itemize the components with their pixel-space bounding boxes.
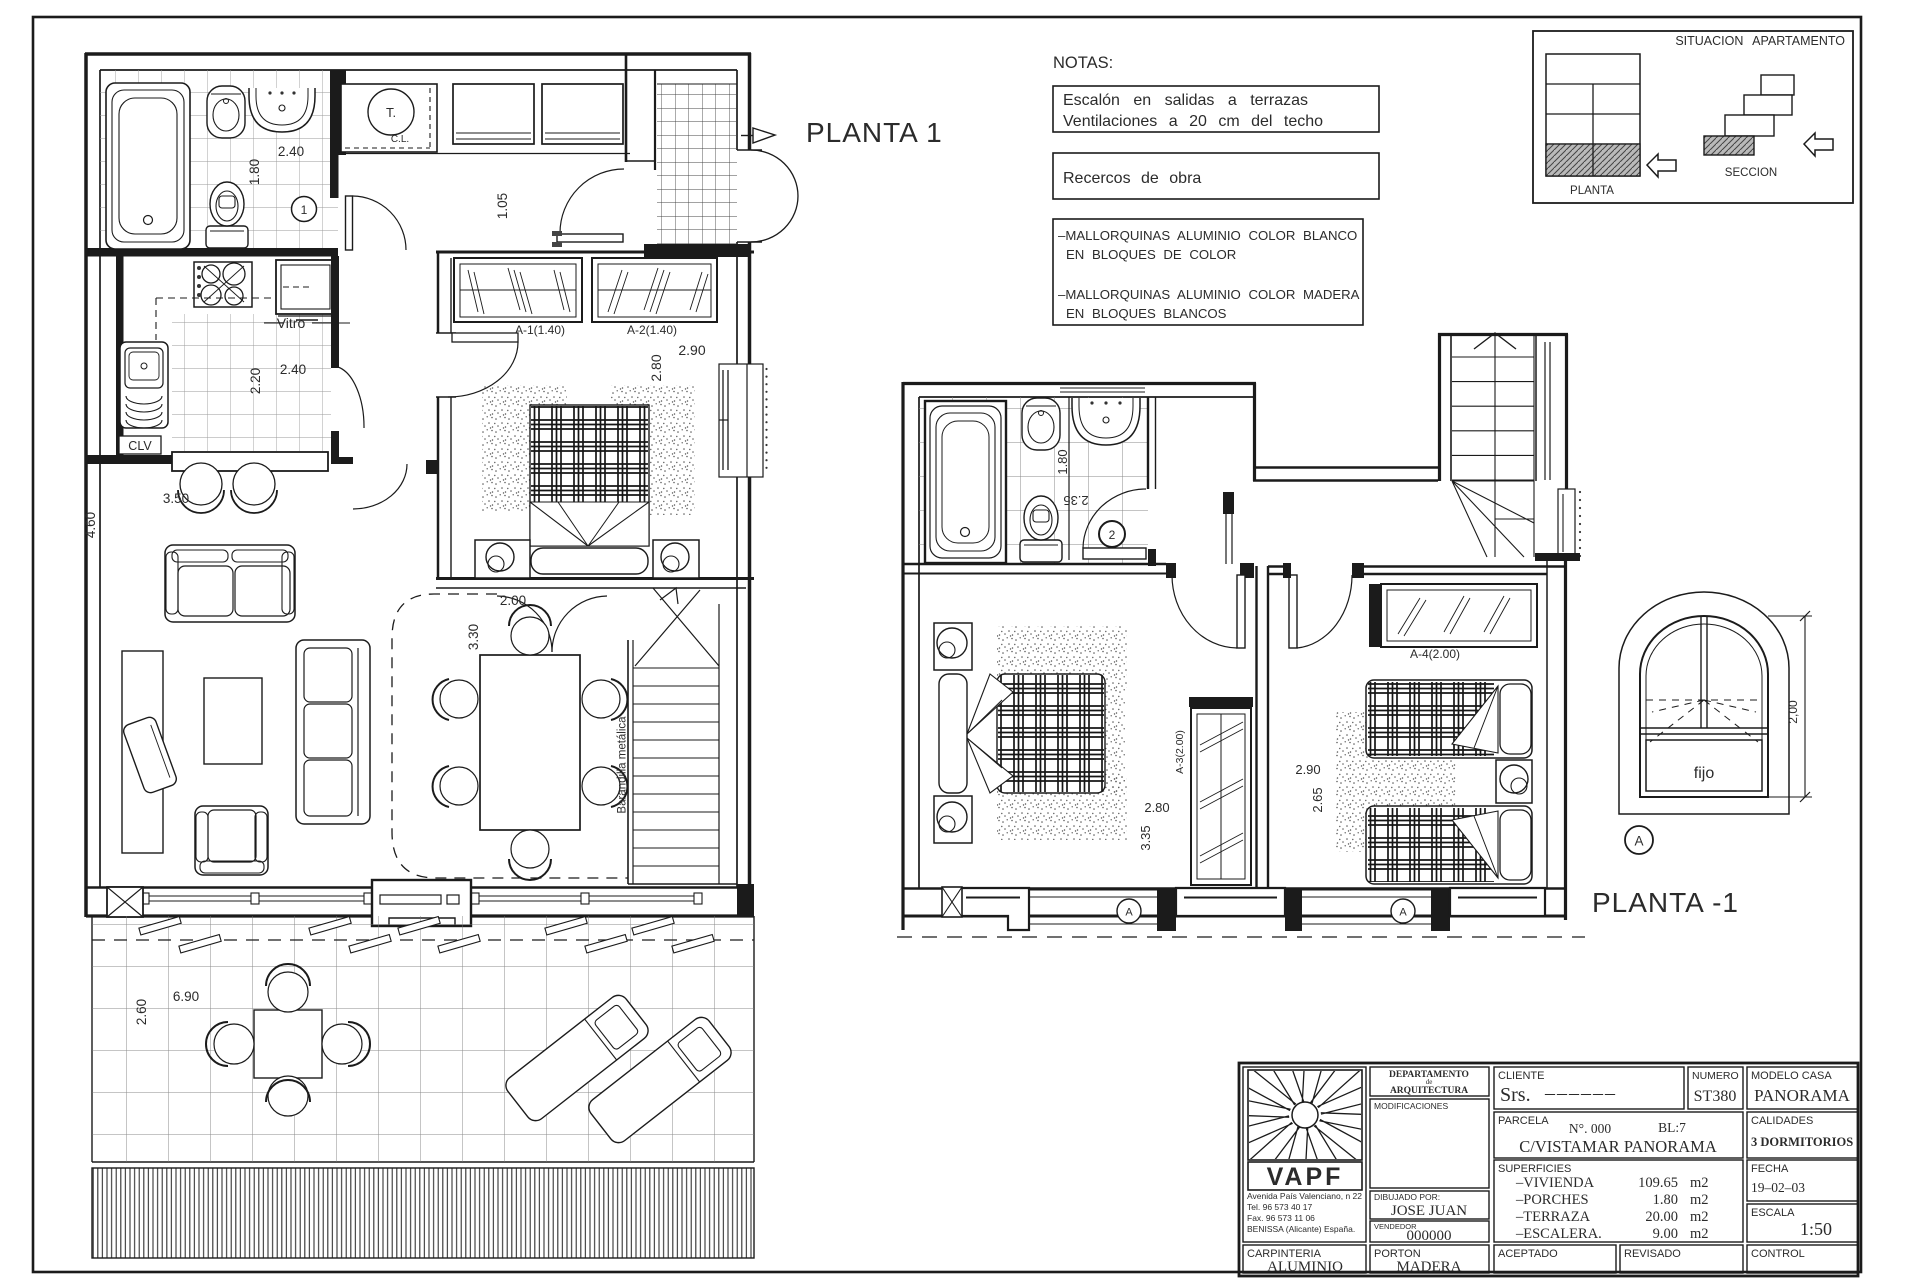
svg-text:Ventilaciones a 20 cm del tech: Ventilaciones a 20 cm del techo <box>1063 113 1323 130</box>
svg-text:EN BLOQUES BLANCOS: EN BLOQUES BLANCOS <box>1066 306 1227 321</box>
svg-text:2: 2 <box>1109 528 1116 542</box>
svg-text:NUMERO: NUMERO <box>1692 1070 1739 1082</box>
svg-text:A-3(2.00): A-3(2.00) <box>1174 730 1186 774</box>
svg-text:A-2(1.40): A-2(1.40) <box>627 323 677 337</box>
svg-text:–TERRAZA: –TERRAZA <box>1515 1209 1591 1225</box>
svg-text:MODELO CASA: MODELO CASA <box>1751 1070 1832 1082</box>
svg-text:ALUMINIO: ALUMINIO <box>1267 1259 1343 1275</box>
svg-text:ESCALA: ESCALA <box>1751 1207 1795 1219</box>
svg-text:–ESCALERA.: –ESCALERA. <box>1515 1226 1602 1242</box>
svg-text:2.80: 2.80 <box>1144 800 1169 815</box>
svg-text:C.L.: C.L. <box>391 134 409 145</box>
svg-text:2.60: 2.60 <box>134 999 149 1025</box>
svg-text:Recercos de obra: Recercos de obra <box>1063 170 1201 187</box>
svg-text:ACEPTADO: ACEPTADO <box>1498 1248 1558 1260</box>
svg-text:2.35: 2.35 <box>1063 493 1088 508</box>
svg-text:1: 1 <box>301 203 308 217</box>
svg-text:A: A <box>1125 907 1133 919</box>
svg-text:T.: T. <box>386 105 396 120</box>
svg-text:m2: m2 <box>1690 1226 1709 1242</box>
svg-text:N°. 000: N°. 000 <box>1569 1121 1611 1136</box>
svg-text:VAPF: VAPF <box>1267 1163 1344 1191</box>
svg-text:ST380: ST380 <box>1694 1088 1737 1105</box>
svg-text:PARCELA: PARCELA <box>1498 1115 1549 1127</box>
svg-text:3.50: 3.50 <box>163 491 189 506</box>
svg-text:PANORAMA: PANORAMA <box>1754 1086 1850 1105</box>
svg-text:PLANTA: PLANTA <box>1570 185 1614 197</box>
svg-text:Srs.: Srs. <box>1500 1084 1531 1106</box>
svg-text:SECCION: SECCION <box>1725 167 1777 179</box>
svg-text:CALIDADES: CALIDADES <box>1751 1115 1813 1127</box>
svg-text:A-1(1.40): A-1(1.40) <box>515 323 565 337</box>
svg-text:000000: 000000 <box>1407 1228 1452 1244</box>
svg-text:2.40: 2.40 <box>280 362 306 377</box>
svg-text:Avenida País Valenciano, n 2: Avenida País Valenciano, n 22 <box>1247 1191 1362 1201</box>
svg-text:3 DORMITORIOS: 3 DORMITORIOS <box>1751 1135 1853 1149</box>
svg-text:2.20: 2.20 <box>248 368 263 394</box>
svg-text:ARQUITECTURA: ARQUITECTURA <box>1390 1086 1468 1096</box>
svg-text:109.65: 109.65 <box>1638 1175 1678 1191</box>
svg-text:–MALLORQUINAS ALUMINIO COLOR M: –MALLORQUINAS ALUMINIO COLOR MADERA <box>1058 287 1360 302</box>
svg-text:3.30: 3.30 <box>466 624 481 650</box>
svg-text:A-4(2.00): A-4(2.00) <box>1410 647 1460 661</box>
svg-text:2.40: 2.40 <box>278 144 304 159</box>
svg-text:6.90: 6.90 <box>173 989 199 1004</box>
svg-text:fijo: fijo <box>1694 765 1715 782</box>
svg-text:2.90: 2.90 <box>1295 762 1320 777</box>
svg-text:Escalón en salidas a terrazas: Escalón en salidas a terrazas <box>1063 92 1308 109</box>
svg-text:NOTAS:: NOTAS: <box>1053 54 1113 72</box>
svg-text:PLANTA -1: PLANTA -1 <box>1592 887 1739 918</box>
svg-text:BL:7: BL:7 <box>1658 1120 1686 1135</box>
svg-text:SUPERFICIES: SUPERFICIES <box>1498 1163 1571 1175</box>
svg-text:A: A <box>1399 907 1407 919</box>
svg-text:CONTROL: CONTROL <box>1751 1248 1805 1260</box>
svg-text:–PORCHES: –PORCHES <box>1515 1192 1589 1208</box>
svg-text:2.80: 2.80 <box>648 354 664 381</box>
svg-text:DIBUJADO POR:: DIBUJADO POR: <box>1374 1192 1440 1202</box>
svg-text:JOSE JUAN: JOSE JUAN <box>1391 1203 1467 1219</box>
svg-text:FECHA: FECHA <box>1751 1163 1789 1175</box>
svg-text:A: A <box>1634 834 1643 849</box>
svg-text:de: de <box>1426 1078 1433 1086</box>
svg-text:3.35: 3.35 <box>1138 825 1153 850</box>
svg-text:––––––: –––––– <box>1544 1082 1617 1104</box>
svg-text:1.80: 1.80 <box>1653 1192 1678 1208</box>
svg-text:20.00: 20.00 <box>1645 1209 1678 1225</box>
svg-text:2.90: 2.90 <box>678 342 705 358</box>
svg-text:SITUACION APARTAMENTO: SITUACION APARTAMENTO <box>1675 34 1845 48</box>
svg-text:m2: m2 <box>1690 1209 1709 1225</box>
svg-text:2.65: 2.65 <box>1310 787 1325 812</box>
svg-text:BENISSA (Alicante) España.: BENISSA (Alicante) España. <box>1247 1224 1355 1234</box>
svg-text:MODIFICACIONES: MODIFICACIONES <box>1374 1101 1448 1111</box>
svg-text:–MALLORQUINAS ALUMINIO COLOR B: –MALLORQUINAS ALUMINIO COLOR BLANCO <box>1058 228 1357 243</box>
svg-text:m2: m2 <box>1690 1192 1709 1208</box>
svg-text:Barandilla metálica: Barandilla metálica <box>617 716 629 814</box>
svg-text:1.05: 1.05 <box>495 193 510 219</box>
svg-text:REVISADO: REVISADO <box>1624 1248 1681 1260</box>
svg-text:MADERA: MADERA <box>1396 1259 1461 1275</box>
svg-text:EN BLOQUES DE COLOR: EN BLOQUES DE COLOR <box>1066 247 1236 262</box>
svg-text:CLIENTE: CLIENTE <box>1498 1070 1544 1082</box>
svg-text:1.80: 1.80 <box>1055 449 1070 474</box>
svg-text:9.00: 9.00 <box>1653 1226 1678 1242</box>
svg-text:2,00: 2,00 <box>1786 700 1800 724</box>
svg-text:Tel. 96 573 40 17: Tel. 96 573 40 17 <box>1247 1202 1312 1212</box>
svg-text:CLV: CLV <box>128 439 152 453</box>
svg-text:1:50: 1:50 <box>1800 1219 1832 1239</box>
svg-text:C/VISTAMAR PANORAMA: C/VISTAMAR PANORAMA <box>1519 1137 1717 1156</box>
svg-text:–VIVIENDA: –VIVIENDA <box>1515 1175 1595 1191</box>
svg-text:m2: m2 <box>1690 1175 1709 1191</box>
svg-text:1.80: 1.80 <box>247 159 262 185</box>
svg-text:4.60: 4.60 <box>83 512 98 538</box>
svg-text:Fax. 96 573 11 06: Fax. 96 573 11 06 <box>1247 1213 1315 1223</box>
svg-text:19–02–03: 19–02–03 <box>1751 1180 1805 1195</box>
svg-text:PLANTA 1: PLANTA 1 <box>806 117 943 148</box>
